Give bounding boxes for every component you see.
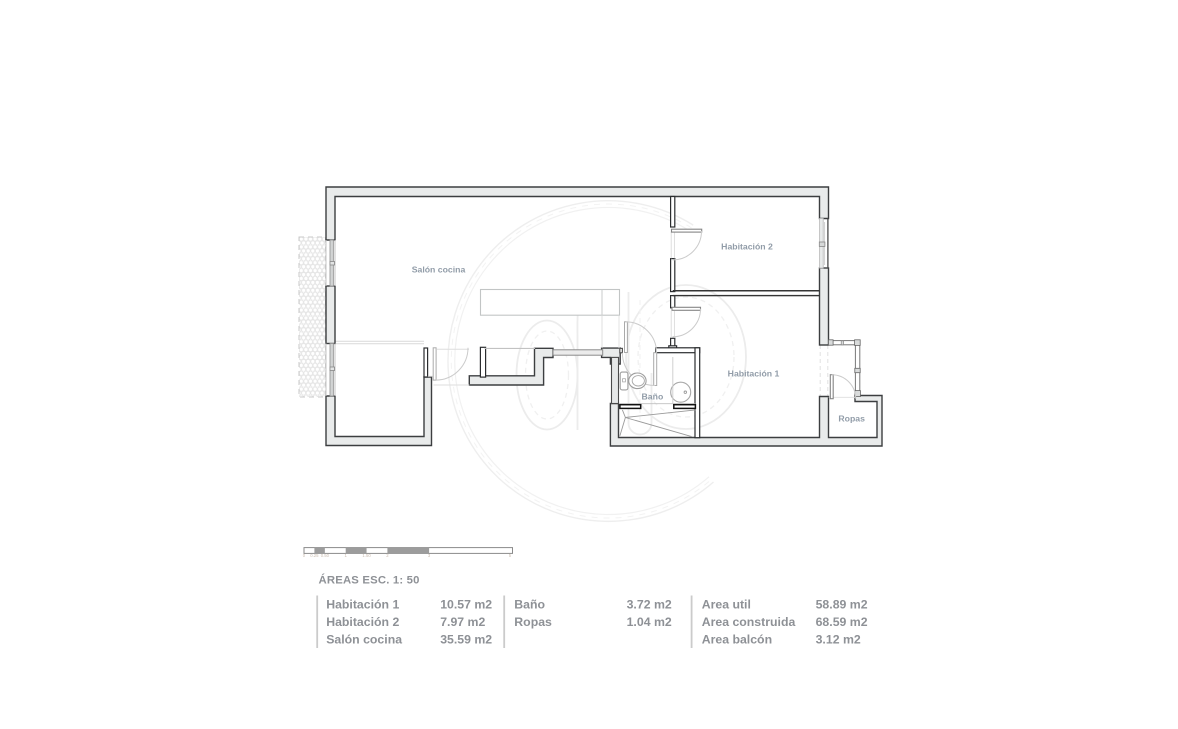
svg-text:Baño: Baño bbox=[514, 598, 545, 612]
svg-text:Ropas: Ropas bbox=[514, 615, 552, 629]
svg-text:3.12 m2: 3.12 m2 bbox=[816, 633, 861, 647]
svg-text:Habitación 2: Habitación 2 bbox=[326, 615, 399, 629]
svg-text:Area balcón: Area balcón bbox=[702, 633, 772, 647]
svg-text:58.89 m2: 58.89 m2 bbox=[816, 598, 868, 612]
svg-text:7.97 m2: 7.97 m2 bbox=[440, 615, 485, 629]
svg-text:Habitación 1: Habitación 1 bbox=[326, 598, 399, 612]
svg-text:1.50: 1.50 bbox=[362, 553, 371, 558]
svg-text:Area util: Area util bbox=[702, 598, 751, 612]
svg-text:Ropas: Ropas bbox=[838, 413, 865, 423]
svg-text:Habitación 2: Habitación 2 bbox=[721, 242, 773, 252]
svg-text:Baño: Baño bbox=[642, 392, 664, 402]
svg-text:0.25: 0.25 bbox=[310, 553, 319, 558]
svg-text:1.04 m2: 1.04 m2 bbox=[627, 615, 672, 629]
svg-text:Area construida: Area construida bbox=[702, 615, 796, 629]
svg-text:68.59 m2: 68.59 m2 bbox=[816, 615, 868, 629]
svg-text:Habitación 1: Habitación 1 bbox=[728, 369, 780, 379]
svg-text:10.57 m2: 10.57 m2 bbox=[440, 598, 492, 612]
svg-text:Salón cocina: Salón cocina bbox=[412, 265, 466, 275]
svg-text:0.50: 0.50 bbox=[321, 553, 330, 558]
svg-text:35.59 m2: 35.59 m2 bbox=[440, 633, 492, 647]
svg-text:ÁREAS ESC. 1: 50: ÁREAS ESC. 1: 50 bbox=[319, 574, 420, 587]
svg-text:Salón cocina: Salón cocina bbox=[326, 633, 402, 647]
svg-text:3.72 m2: 3.72 m2 bbox=[627, 598, 672, 612]
